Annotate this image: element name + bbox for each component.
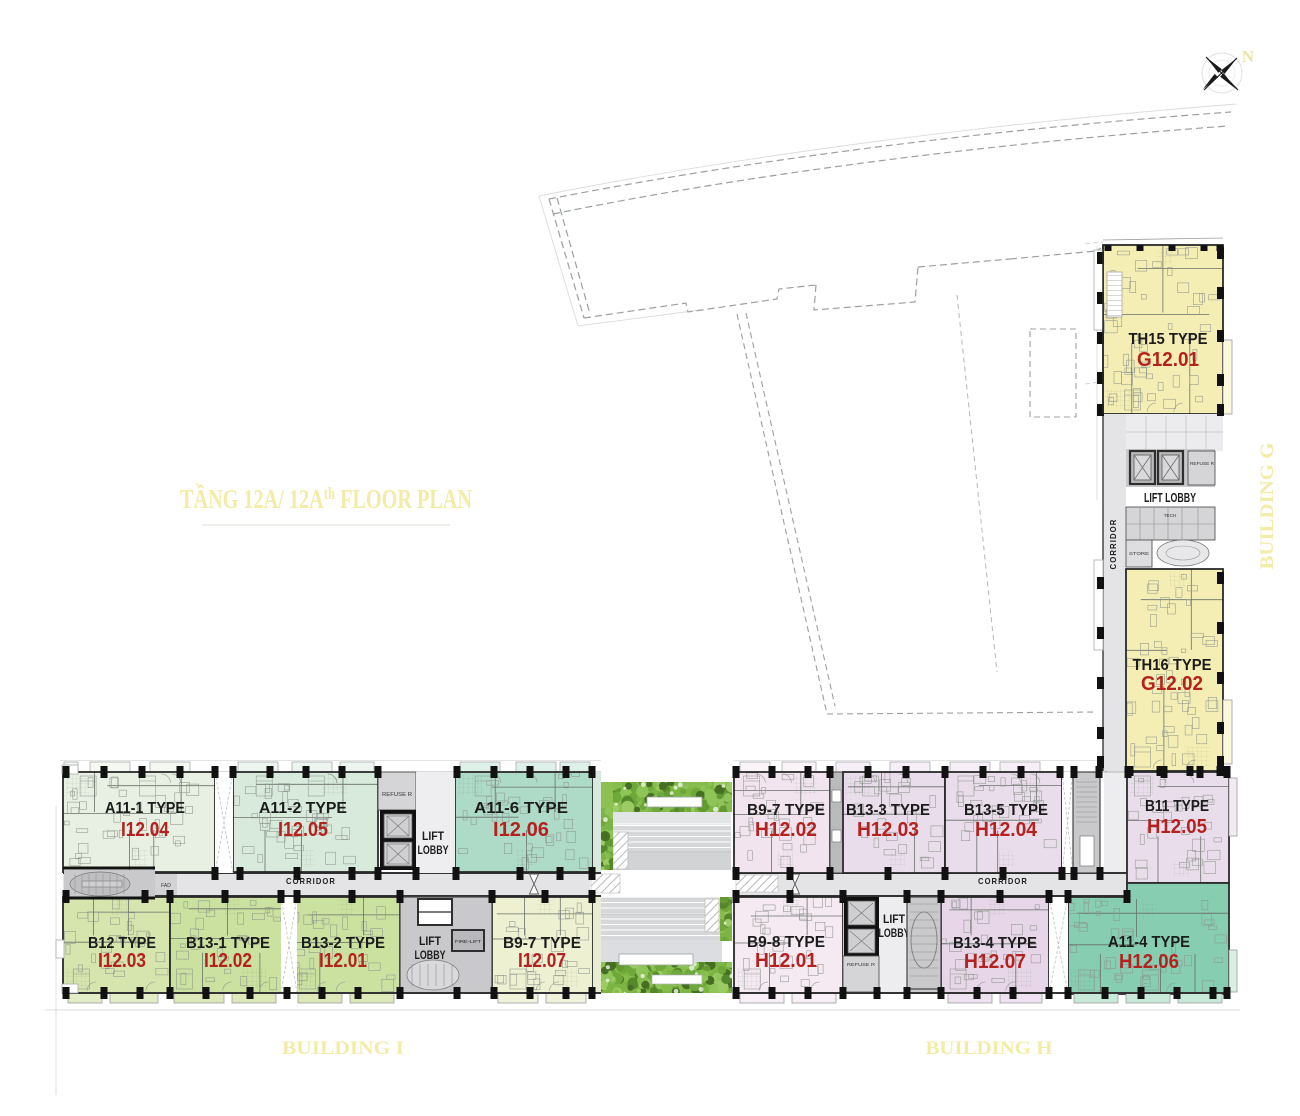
svg-text:H12.01: H12.01: [755, 950, 817, 972]
svg-text:STORE: STORE: [1129, 551, 1149, 556]
svg-text:CORRIDOR: CORRIDOR: [978, 876, 1028, 886]
svg-text:TH16 TYPE: TH16 TYPE: [1133, 657, 1212, 674]
svg-text:H12.04: H12.04: [975, 819, 1038, 841]
svg-text:CORRIDOR: CORRIDOR: [286, 876, 336, 886]
svg-text:I12.01: I12.01: [319, 950, 367, 972]
svg-text:BUILDING H: BUILDING H: [926, 1038, 1053, 1059]
svg-text:B13-3 TYPE: B13-3 TYPE: [846, 802, 930, 819]
svg-text:B13-4 TYPE: B13-4 TYPE: [953, 935, 1037, 952]
svg-text:H12.05: H12.05: [1147, 816, 1207, 838]
svg-text:LOBBY: LOBBY: [879, 926, 910, 940]
svg-text:I12.05: I12.05: [278, 819, 328, 841]
svg-text:B11 TYPE: B11 TYPE: [1145, 798, 1209, 815]
svg-text:FIRE-LIFT: FIRE-LIFT: [455, 939, 481, 945]
svg-text:A11-6 TYPE: A11-6 TYPE: [474, 800, 568, 817]
svg-text:H12.03: H12.03: [857, 819, 919, 841]
svg-text:LIFT: LIFT: [419, 934, 442, 948]
svg-text:H12.06: H12.06: [1119, 951, 1179, 973]
svg-text:A11-2 TYPE: A11-2 TYPE: [259, 800, 347, 817]
svg-text:I12.04: I12.04: [121, 819, 170, 841]
svg-text:LIFT: LIFT: [883, 912, 906, 926]
svg-text:B13-5 TYPE: B13-5 TYPE: [964, 802, 1048, 819]
svg-text:REFUSE R: REFUSE R: [847, 962, 876, 968]
svg-text:TECH: TECH: [1164, 513, 1177, 518]
svg-text:I12.02: I12.02: [204, 950, 252, 972]
svg-text:B9-7 TYPE: B9-7 TYPE: [747, 802, 825, 819]
svg-text:I12.06: I12.06: [493, 819, 549, 841]
svg-text:REFUSE R: REFUSE R: [382, 792, 412, 798]
svg-text:H12.02: H12.02: [755, 819, 817, 841]
svg-text:BUILDING G: BUILDING G: [1257, 442, 1278, 569]
svg-text:G12.02: G12.02: [1141, 673, 1203, 695]
svg-text:A11-1 TYPE: A11-1 TYPE: [105, 800, 185, 817]
svg-text:LIFT: LIFT: [422, 829, 445, 843]
svg-text:N: N: [1242, 47, 1255, 66]
svg-text:B9-8 TYPE: B9-8 TYPE: [747, 934, 825, 951]
svg-text:BUILDING I: BUILDING I: [282, 1038, 404, 1059]
svg-text:I12.07: I12.07: [518, 950, 566, 972]
svg-text:TH15 TYPE: TH15 TYPE: [1129, 331, 1208, 348]
svg-text:G12.01: G12.01: [1137, 349, 1199, 371]
svg-text:REFUSE R: REFUSE R: [1190, 461, 1215, 466]
svg-text:CORRIDOR: CORRIDOR: [1108, 519, 1118, 570]
svg-text:LIFT LOBBY: LIFT LOBBY: [1144, 490, 1196, 505]
svg-text:I12.03: I12.03: [98, 950, 146, 972]
svg-text:FAD: FAD: [161, 883, 171, 889]
svg-text:H12.07: H12.07: [964, 951, 1026, 973]
svg-text:LOBBY: LOBBY: [418, 843, 449, 857]
svg-text:A11-4 TYPE: A11-4 TYPE: [1108, 934, 1190, 951]
